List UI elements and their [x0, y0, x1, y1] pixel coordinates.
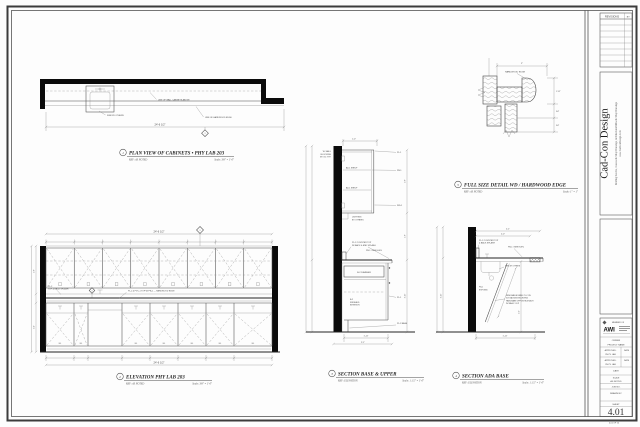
sheet-border	[8, 7, 637, 421]
sec3-title-text: SECTION BASE & UPPER	[338, 373, 397, 378]
tb-sheet-label: SHEET	[612, 404, 620, 406]
svg-text:B-1: B-1	[191, 343, 194, 345]
plan-title: 1 PLAN VIEW OF CABINETS • PHY LAB 203 RE…	[120, 149, 235, 161]
tb-job-no: JOB NO.	[612, 386, 621, 388]
svg-text:INTERIOR: INTERIOR	[350, 305, 360, 307]
plan-title-num: 1	[122, 151, 124, 155]
svg-text:1'-11": 1'-11"	[364, 336, 369, 338]
svg-text:EXPOSED: EXPOSED	[479, 289, 488, 291]
svg-text:4: 4	[92, 290, 93, 292]
revisions-table: REVISIONS BY	[600, 13, 632, 67]
dimension-tick-overlay	[30, 65, 555, 366]
sec3-leader-0: PL-1	[397, 152, 402, 154]
plan-title-text: PLAN VIEW OF CABINETS • PHY LAB 203	[129, 152, 225, 157]
elev-ann-splash2: TOP & BACK SPLASH	[48, 288, 69, 291]
svg-text:1'-11": 1'-11"	[503, 336, 508, 338]
svg-text:B-1: B-1	[219, 343, 222, 345]
svg-text:W/ BACK & END SPLASH: W/ BACK & END SPLASH	[352, 244, 376, 247]
elev-title-num: 2	[119, 375, 121, 379]
svg-text:2'-10": 2'-10"	[405, 293, 407, 298]
tb-owner: OWNER	[612, 340, 621, 342]
svg-text:W/ MAGIC CLIP: W/ MAGIC CLIP	[506, 302, 520, 305]
svg-text:BLOCKING: BLOCKING	[321, 154, 332, 156]
section-base-upper: 1'-0" W. WALL BLOCKING BY GC TYP. ADJ. S…	[306, 139, 425, 383]
elevation-view: 24'-6 1/2" 3 4 PL-2 TOP & BACK SP	[32, 227, 281, 386]
project-panel	[600, 219, 632, 314]
svg-text:3/4": 3/4"	[556, 125, 559, 127]
svg-text:PHYS. LAB: PHYS. LAB	[605, 363, 616, 366]
detail-title: 5 FULL SIZE DETAIL WD / HARDWOOD EDGE RE…	[455, 181, 579, 193]
sec3-ann-pb1: PB-1 / SEE ELEV.	[366, 250, 383, 252]
ada-dim-t1: 2'-1"	[506, 229, 510, 231]
detail-bullnose	[522, 78, 536, 102]
ada-ref: REF: ELEVATION	[461, 381, 482, 384]
svg-text:B-2: B-2	[350, 299, 354, 301]
elev-left-dims: 2'-6" 3'-0"	[32, 246, 37, 352]
elev-title-text: ELEVATION PHY LAB 203	[125, 376, 185, 381]
svg-text:B-1: B-1	[163, 343, 166, 345]
svg-text:B-1: B-1	[135, 343, 138, 345]
sheet-canvas: LINE OF WALL CABINETS ABOVE SINK BY OTHE…	[0, 0, 640, 427]
elev-scale: Scale: 3/8" = 1'-0"	[192, 382, 213, 385]
ada-sink-bowl	[481, 262, 500, 273]
ada-title-num: 4	[455, 374, 457, 378]
elev-upper-cabinets	[46, 248, 272, 288]
svg-text:B-1: B-1	[59, 343, 62, 345]
elev-base-cabinets	[46, 303, 272, 346]
awi-text: AWI	[604, 328, 616, 334]
sec3-leader-2: WD-1	[397, 205, 403, 207]
svg-text:DATE: DATE	[624, 349, 630, 352]
sheet-of: 4.01 OF 10	[609, 423, 620, 425]
sec3-leader-4: PL-2 BASE	[397, 322, 408, 325]
svg-text:BY OTHERS: BY OTHERS	[352, 219, 364, 221]
sec3-light-valance: LIGHTING BY OTHERS	[342, 213, 364, 221]
svg-text:2'-6": 2'-6"	[34, 269, 36, 273]
titleblock-lower: MEMBER OF AWI OWNER PROJECT NAME APPROVE…	[600, 318, 632, 425]
svg-text:REMOVABLE PANEL PL-2 ON: REMOVABLE PANEL PL-2 ON	[506, 294, 531, 297]
svg-text:PHYS. LAB: PHYS. LAB	[605, 353, 616, 356]
svg-text:2'-10": 2'-10"	[441, 293, 443, 298]
ada-ann-sink: SINK BY OTHERS	[505, 266, 521, 268]
elev-dim-top: 24'-6 1/2"	[154, 230, 165, 234]
svg-text:ADJ. SHELF: ADJ. SHELF	[346, 187, 358, 190]
sec3-scale: Scale: 1 1/2" = 1'-0"	[402, 379, 425, 382]
sec3-dim-clear: 1'-0"	[352, 139, 356, 141]
ada-faucet	[485, 254, 489, 258]
sec3-upper-cabinet: ADJ. SHELF ADJ. SHELF	[342, 150, 375, 213]
company-tagline: Drafting Service, Casework Shop Drawings…	[615, 101, 618, 185]
detail-title-num: 5	[457, 183, 459, 187]
svg-text:PL-2 COUNTER TOP: PL-2 COUNTER TOP	[352, 242, 372, 244]
svg-text:B-1: B-1	[252, 343, 255, 345]
elev-ann-top: PL-2 & PVC-1 TOP W/ PB-1 — HARDWOOD EDGE	[128, 290, 175, 293]
plan-ann-sink: SINK BY OTHERS	[107, 115, 124, 117]
tb-drawn-by: DRAWN BY:	[610, 392, 623, 395]
elev-section-marker-top: 3	[197, 227, 204, 247]
detail-ref: REF: AS NOTED	[463, 190, 482, 193]
svg-text:PL-2 COUNTER TOP: PL-2 COUNTER TOP	[479, 240, 499, 242]
ada-ann-pb1: PB-1 / SEE ELEV.	[508, 247, 525, 249]
sec3-title: 3 SECTION BASE & UPPER REF: ELEVATION Sc…	[329, 370, 425, 382]
svg-text:3: 3	[200, 230, 201, 232]
svg-text:3: 3	[205, 133, 206, 135]
ada-title-text: SECTION ADA BASE	[462, 375, 509, 380]
svg-text:B-1: B-1	[80, 343, 83, 345]
svg-text:HARDWARE OPPOSITE ATTACH: HARDWARE OPPOSITE ATTACH	[506, 299, 534, 302]
sheet-number: 4.01	[608, 408, 625, 418]
awi-logo: MEMBER OF AWI	[603, 321, 631, 334]
plan-view: LINE OF WALL CABINETS ABOVE SINK BY OTHE…	[40, 79, 284, 161]
awi-member-of: MEMBER OF	[612, 322, 625, 324]
elev-section-marker-mid: 4	[89, 288, 95, 298]
plan-ref: REF: AS NOTED	[128, 158, 147, 161]
section-ada-base: 2'-1" 2'-0" PL-2 COUNTER TOP & BACK SPLA…	[436, 227, 545, 384]
tb-date: DATE	[613, 370, 619, 373]
ada-p-trap	[489, 273, 494, 281]
company-name: Cad-Con Design	[600, 108, 611, 179]
detail-scale: Scale: 1" = 1"	[563, 190, 579, 193]
company-website: www.CadConDesign.Com	[620, 130, 622, 157]
detail-ann-edge: HARDWOOD EDGE	[505, 71, 526, 74]
elev-faucet	[98, 290, 103, 294]
svg-text:1 1/2": 1 1/2"	[556, 91, 561, 93]
sec3-title-num: 3	[331, 372, 333, 376]
ada-removable-panel	[485, 263, 516, 323]
svg-text:LIGHTING: LIGHTING	[352, 217, 362, 219]
ada-scale: Scale: 1 1/2" = 1'-0"	[522, 381, 545, 384]
svg-text:3/4" BACKING MOUNTING: 3/4" BACKING MOUNTING	[506, 297, 529, 300]
svg-text:APPROVED:: APPROVED:	[605, 349, 617, 352]
svg-text:& BACK SPLASH: & BACK SPLASH	[479, 242, 495, 245]
svg-text:PB-1: PB-1	[479, 287, 483, 289]
sec3-leader-3: PL-1	[397, 297, 402, 299]
plan-dim-overall: 24'-6 1/2"	[155, 123, 166, 127]
svg-text:B-2 DRAWER: B-2 DRAWER	[357, 271, 371, 274]
revision-rows	[600, 25, 632, 61]
sec3-ref: REF: ELEVATION	[337, 379, 358, 382]
svg-text:2": 2"	[521, 63, 523, 65]
ada-title: 4 SECTION ADA BASE REF: ELEVATION Scale:…	[453, 372, 545, 384]
plan-scale: Scale: 3/8" = 1'-0"	[214, 158, 235, 161]
revisions-header: REVISIONS	[605, 14, 619, 18]
svg-text:FINISHED: FINISHED	[350, 302, 360, 304]
tb-scale: SCALE	[613, 377, 620, 380]
svg-text:2'-1": 2'-1"	[361, 342, 365, 344]
elev-ann-splash1: PL-2	[48, 286, 53, 288]
revisions-by: BY	[627, 16, 630, 18]
plan-section-marker: 3	[202, 127, 209, 137]
sec3-base-cabinet: B-2 DRAWER B-2 FINISHED INTERIOR PL-1 PL…	[306, 263, 415, 332]
sec3-leader-1: PB-1	[397, 170, 402, 172]
svg-text:DATE: DATE	[624, 359, 630, 362]
svg-text:3'-0": 3'-0"	[34, 325, 36, 329]
detail-title-text: FULL SIZE DETAIL WD / HARDWOOD EDGE	[464, 184, 567, 189]
elev-ref: REF: AS NOTED	[125, 382, 144, 385]
svg-text:ADJ. SHELF: ADJ. SHELF	[346, 167, 358, 170]
sec3-counter: PL-2 COUNTER TOP W/ BACK & END SPLASH PB…	[342, 242, 392, 263]
elev-title: 2 ELEVATION PHY LAB 203 REF: AS NOTED Sc…	[117, 373, 213, 385]
svg-text:2'-3": 2'-3"	[519, 310, 521, 314]
svg-text:W. WALL: W. WALL	[323, 150, 332, 153]
plan-ann-wall-cabs: LINE OF WALL CABINETS ABOVE	[158, 99, 190, 102]
plan-sink	[86, 86, 114, 112]
svg-text:2'-6": 2'-6"	[405, 179, 407, 183]
full-size-detail: HARDWOOD EDGE 2" 1 1/2" 3/4" 3/4" 5 FULL…	[455, 58, 579, 193]
svg-text:APPROVED:: APPROVED:	[605, 359, 617, 362]
plan-ann-edge: LINE OF HARDWOOD EDGE	[205, 116, 232, 119]
svg-text:1'-6": 1'-6"	[405, 234, 407, 238]
tb-scale-value: AS NOTED	[610, 380, 622, 383]
ada-dim-t2: 2'-0"	[501, 234, 505, 236]
drawing-sheet: LINE OF WALL CABINETS ABOVE SINK BY OTHE…	[0, 0, 640, 427]
svg-text:BY GC TYP.: BY GC TYP.	[320, 157, 331, 159]
company-panel: Cad-Con Design Drafting Service, Casewor…	[600, 72, 633, 215]
tb-project: PROJECT NAME	[607, 343, 625, 346]
elev-dim-bottom: 24'-6 1/2"	[154, 361, 165, 365]
svg-text:3/4": 3/4"	[556, 111, 559, 113]
